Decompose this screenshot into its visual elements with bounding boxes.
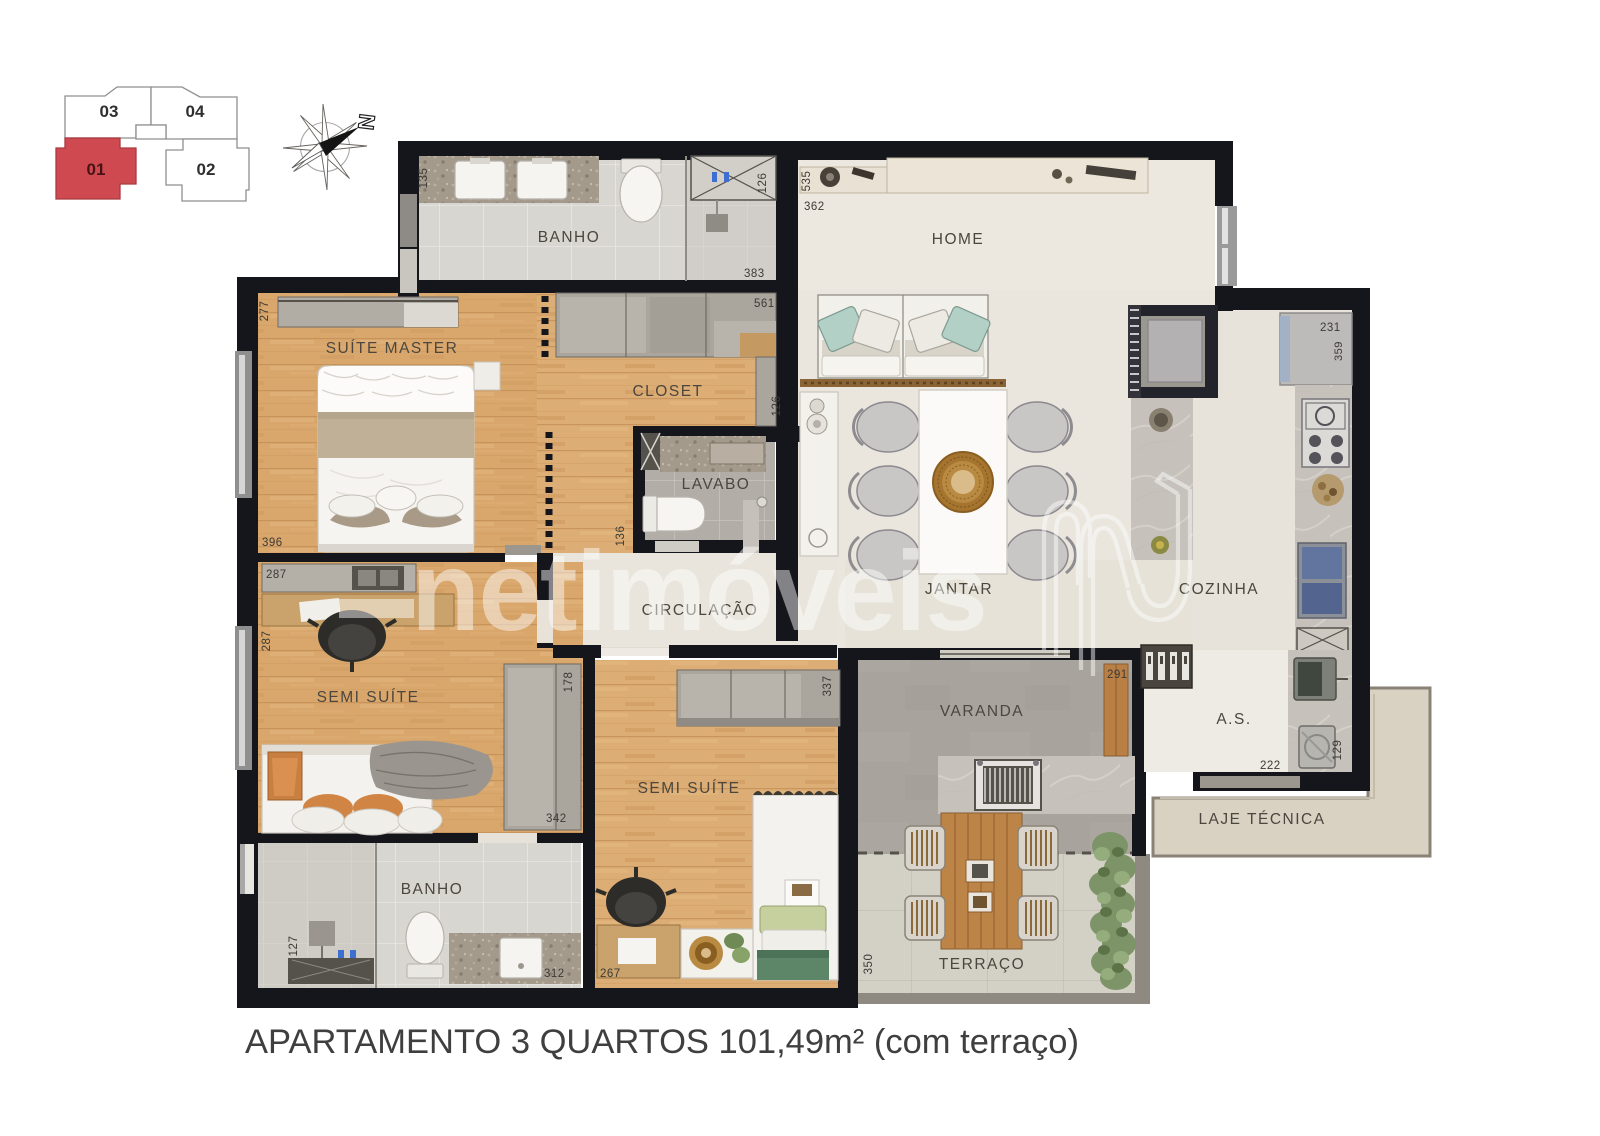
svg-text:291: 291 (1107, 669, 1128, 681)
svg-text:312: 312 (544, 968, 565, 980)
svg-text:COZINHA: COZINHA (1179, 581, 1259, 598)
svg-text:02: 02 (197, 160, 216, 179)
svg-text:129: 129 (1332, 740, 1344, 761)
svg-text:126: 126 (757, 173, 769, 194)
svg-text:383: 383 (744, 268, 765, 280)
svg-text:LAJE TÉCNICA: LAJE TÉCNICA (1198, 811, 1325, 828)
svg-text:netimóveis: netimóveis (411, 528, 986, 654)
svg-text:535: 535 (801, 171, 813, 192)
svg-text:SEMI SUÍTE: SEMI SUÍTE (638, 780, 741, 797)
svg-text:LAVABO: LAVABO (682, 476, 751, 493)
svg-text:178: 178 (563, 672, 575, 693)
svg-text:127: 127 (288, 936, 300, 957)
svg-text:SEMI SUÍTE: SEMI SUÍTE (317, 689, 420, 706)
svg-text:BANHO: BANHO (538, 229, 601, 246)
svg-text:277: 277 (259, 301, 271, 322)
svg-text:396: 396 (262, 537, 283, 549)
svg-text:231: 231 (1320, 322, 1341, 334)
svg-text:01: 01 (87, 160, 106, 179)
svg-text:TERRAÇO: TERRAÇO (939, 956, 1025, 973)
svg-text:342: 342 (546, 813, 567, 825)
svg-text:A.S.: A.S. (1216, 711, 1251, 728)
svg-text:03: 03 (100, 102, 119, 121)
svg-text:350: 350 (863, 954, 875, 975)
svg-text:APARTAMENTO 3 QUARTOS 101,49m²: APARTAMENTO 3 QUARTOS 101,49m² (com terr… (245, 1023, 1079, 1061)
svg-text:362: 362 (804, 201, 825, 213)
svg-text:N: N (353, 113, 380, 132)
svg-text:126: 126 (771, 396, 783, 417)
svg-text:04: 04 (186, 102, 205, 121)
svg-text:135: 135 (418, 168, 430, 189)
svg-text:222: 222 (1260, 760, 1281, 772)
svg-text:359: 359 (1333, 341, 1345, 361)
svg-text:337: 337 (822, 676, 834, 697)
svg-text:VARANDA: VARANDA (940, 703, 1024, 720)
svg-text:287: 287 (261, 631, 273, 652)
svg-text:CLOSET: CLOSET (632, 383, 703, 400)
svg-text:267: 267 (600, 968, 621, 980)
svg-text:561: 561 (754, 298, 775, 310)
svg-text:SUÍTE MASTER: SUÍTE MASTER (326, 340, 459, 357)
svg-text:HOME: HOME (932, 231, 985, 248)
svg-text:287: 287 (266, 569, 287, 581)
svg-text:BANHO: BANHO (401, 881, 464, 898)
